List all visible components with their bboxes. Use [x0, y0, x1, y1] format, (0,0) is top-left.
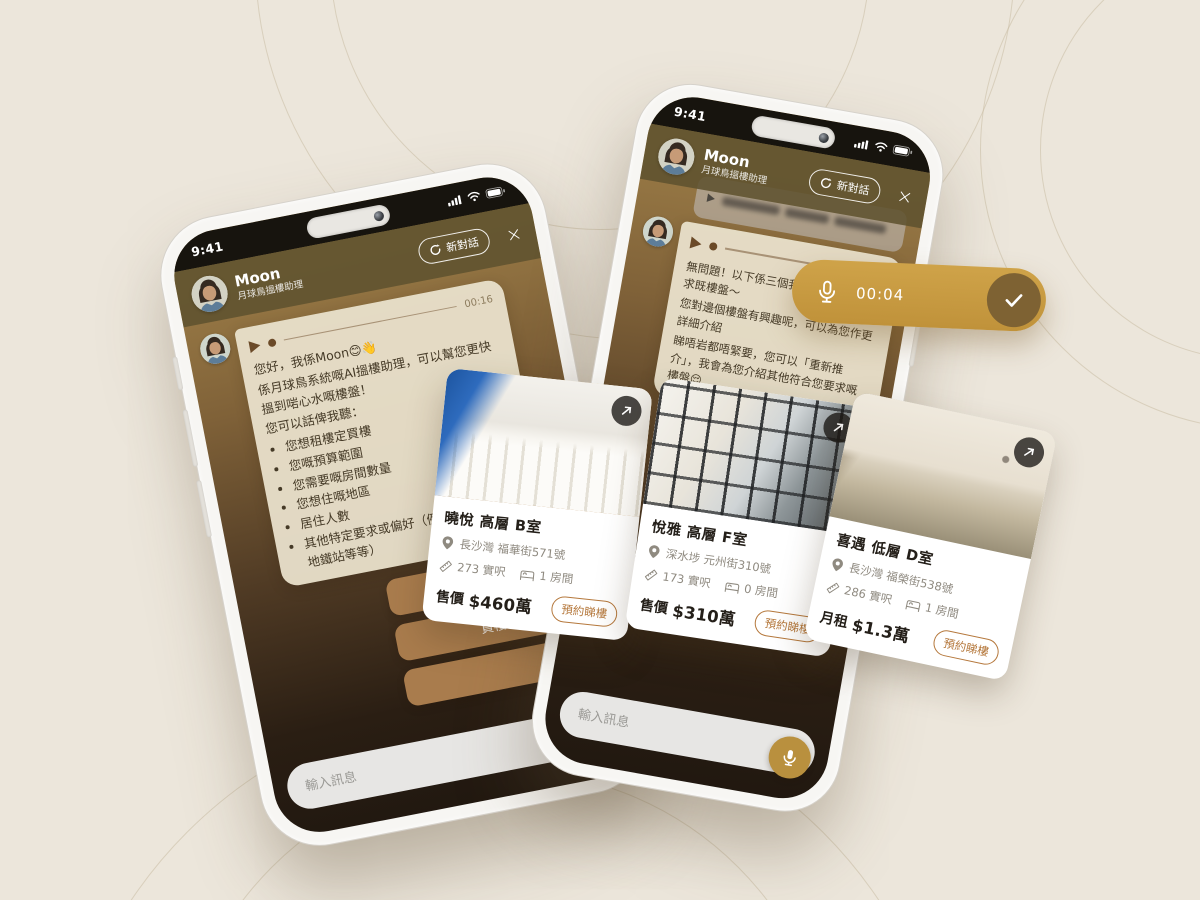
cellular-icon — [854, 137, 871, 149]
volume-button — [182, 409, 198, 467]
price-label: 月租 — [818, 607, 850, 632]
pin-icon — [647, 544, 661, 560]
new-chat-button[interactable]: 新對話 — [416, 227, 492, 266]
open-listing-button[interactable] — [1011, 435, 1047, 471]
area-spec: 273 實呎 — [439, 557, 507, 580]
battery-icon — [485, 186, 507, 200]
ruler-icon — [439, 559, 453, 573]
rooms-value: 1 房間 — [539, 568, 574, 587]
voice-duration: 00:16 — [463, 292, 494, 312]
assistant-avatar — [189, 273, 231, 315]
price-value: $460萬 — [468, 588, 534, 618]
property-info: 曉悅 高層 B室 長沙灣 福華街571號 273 實呎 1 房間 售價 $460… — [422, 495, 640, 641]
area-spec: 173 實呎 — [644, 566, 712, 592]
ruler-icon — [825, 580, 840, 595]
assistant-identity: Moon 月球鳥搵樓助理 — [700, 146, 771, 187]
mic-icon — [778, 746, 801, 769]
arrow-up-right-icon — [619, 403, 634, 418]
volume-button — [196, 480, 212, 538]
arrow-up-right-icon — [830, 420, 846, 436]
play-icon[interactable] — [690, 236, 703, 250]
confirm-send-button[interactable] — [986, 271, 1042, 327]
open-listing-button[interactable] — [610, 394, 643, 427]
refresh-icon — [428, 243, 442, 257]
assistant-identity: Moon 月球鳥搵樓助理 — [233, 261, 304, 303]
price-value: $1.3萬 — [850, 612, 912, 648]
rooms-spec: 1 房間 — [519, 566, 574, 588]
rooms-value: 0 房間 — [743, 581, 779, 602]
stage: 9:41 Moon 月球鳥搵樓助理 新 — [0, 0, 1200, 900]
check-icon — [1001, 287, 1026, 312]
rooms-spec: 1 房間 — [904, 595, 960, 622]
battery-icon — [892, 144, 913, 157]
mute-switch — [172, 356, 183, 390]
new-chat-label: 新對話 — [836, 177, 871, 198]
cellular-icon — [447, 194, 464, 207]
decorative-circle — [980, 0, 1200, 430]
book-viewing-button[interactable]: 預約睇樓 — [550, 595, 618, 628]
assistant-avatar — [655, 136, 697, 178]
ruler-icon — [644, 567, 659, 582]
assistant-avatar — [198, 331, 233, 366]
bed-icon — [904, 597, 921, 613]
assistant-avatar — [641, 214, 676, 249]
arrow-up-right-icon — [1021, 444, 1038, 461]
wifi-icon — [873, 141, 889, 153]
bed-icon — [519, 567, 535, 581]
pin-icon — [441, 535, 454, 550]
price-value: $310萬 — [671, 597, 737, 630]
rooms-spec: 0 房間 — [723, 578, 779, 602]
property-address: 長沙灣 福華街571號 — [459, 536, 566, 563]
property-photo — [435, 368, 653, 517]
play-icon — [707, 194, 716, 204]
property-card[interactable]: 曉悅 高層 B室 長沙灣 福華街571號 273 實呎 1 房間 售價 $460… — [422, 368, 653, 641]
wifi-icon — [466, 190, 482, 202]
refresh-icon — [819, 176, 833, 190]
price-label: 售價 — [639, 594, 670, 618]
new-chat-label: 新對話 — [445, 234, 480, 256]
rooms-value: 1 房間 — [924, 599, 961, 622]
bed-icon — [724, 579, 741, 594]
area-value: 273 實呎 — [456, 559, 506, 580]
mic-icon — [814, 278, 841, 305]
progress-handle[interactable] — [267, 338, 276, 347]
progress-handle[interactable] — [709, 242, 718, 251]
close-icon[interactable]: × — [895, 186, 914, 207]
pin-icon — [830, 557, 845, 573]
play-icon[interactable] — [248, 339, 261, 353]
voice-recording-pill: 00:04 — [791, 258, 1048, 332]
area-value: 286 實呎 — [843, 582, 894, 608]
price-row: 售價 $460萬 預約睇樓 — [435, 583, 619, 628]
area-value: 173 實呎 — [661, 568, 711, 591]
status-icons — [447, 186, 507, 207]
price-label: 售價 — [435, 586, 465, 609]
book-viewing-button[interactable]: 預約睇樓 — [931, 628, 1001, 667]
clock: 9:41 — [190, 238, 225, 259]
close-icon[interactable]: × — [504, 224, 523, 246]
recording-duration: 00:04 — [856, 284, 905, 304]
new-chat-button[interactable]: 新對話 — [807, 167, 882, 205]
clock: 9:41 — [673, 103, 707, 123]
status-icons — [854, 137, 914, 157]
